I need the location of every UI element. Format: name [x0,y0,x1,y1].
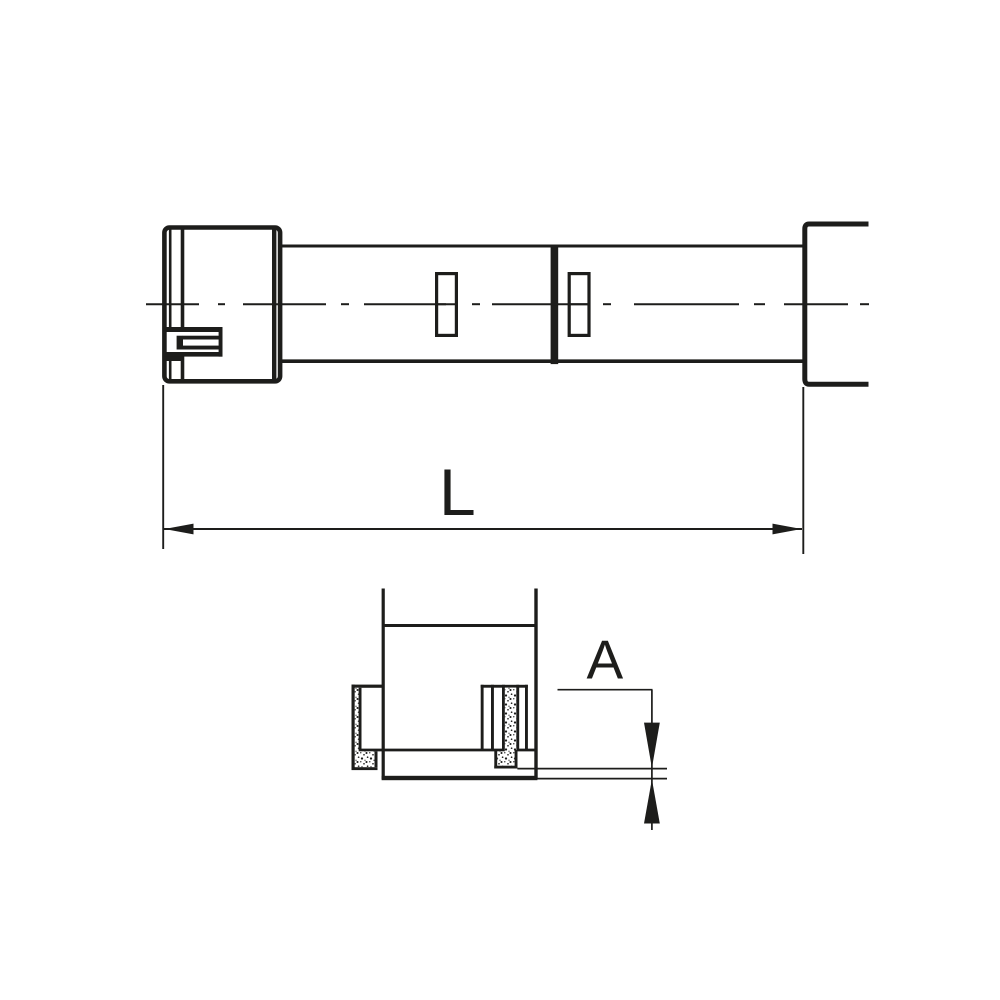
svg-text:A: A [587,629,624,691]
svg-text:L: L [439,455,476,529]
